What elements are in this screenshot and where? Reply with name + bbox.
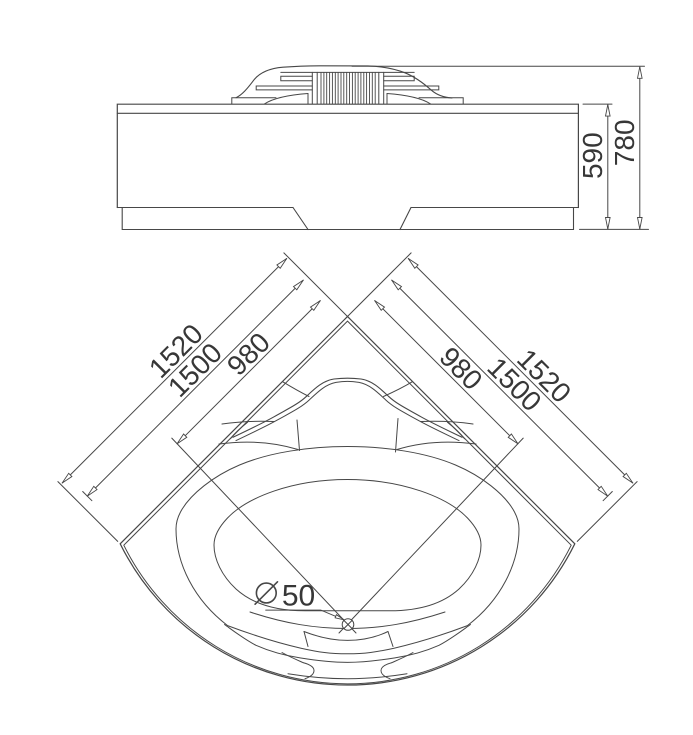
svg-text:780: 780 — [609, 119, 640, 166]
svg-text:980: 980 — [221, 327, 276, 382]
svg-text:50: 50 — [282, 580, 315, 613]
svg-text:980: 980 — [434, 341, 489, 396]
svg-text:590: 590 — [577, 132, 608, 179]
